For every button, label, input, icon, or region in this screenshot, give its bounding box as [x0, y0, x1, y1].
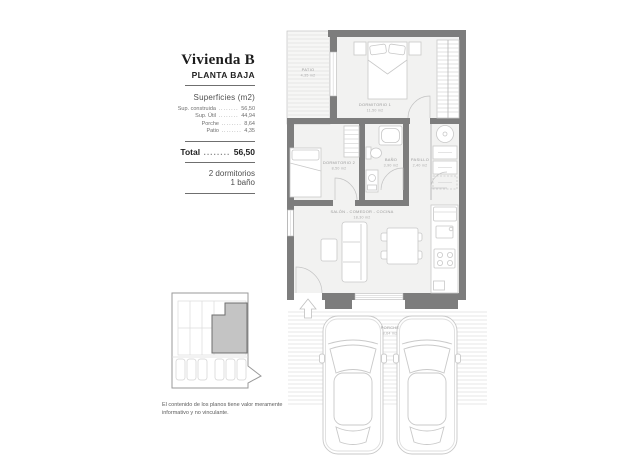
- floor-plan-svg: DORMITORIO 1 11,50 m2 DORMITORIO 2 8,50 …: [0, 0, 631, 464]
- bathroom-sink: [366, 170, 378, 192]
- single-bed: [290, 148, 321, 197]
- stairs: [344, 126, 359, 157]
- dining-table: [387, 228, 418, 264]
- svg-text:11,50 m2: 11,50 m2: [367, 109, 384, 113]
- boiler: [437, 126, 454, 143]
- car-left: [320, 316, 387, 454]
- svg-text:18,30 m2: 18,30 m2: [354, 216, 371, 220]
- room-label-salon: SALÓN - COMEDOR - COCINA: [330, 209, 393, 214]
- toilet: [366, 147, 382, 159]
- nightstand-right: [409, 42, 421, 55]
- svg-text:8,50 m2: 8,50 m2: [332, 167, 347, 171]
- key-plan: [172, 293, 261, 388]
- room-label-bano: BAÑO: [385, 157, 397, 162]
- svg-text:8,64 m2: 8,64 m2: [383, 332, 398, 336]
- room-label-patio: PATIO: [302, 67, 315, 72]
- living-room-side-window: [288, 210, 294, 236]
- entrance-arrow: [300, 299, 316, 318]
- bedroom2-furniture: [290, 148, 321, 197]
- coffee-table: [321, 239, 337, 261]
- svg-text:2,40 m2: 2,40 m2: [413, 164, 428, 168]
- bathtub: [379, 126, 402, 145]
- patio-window: [330, 52, 337, 96]
- double-bed: [368, 42, 407, 99]
- nightstand-left: [354, 42, 366, 55]
- kitchen: [431, 205, 458, 293]
- sofa: [342, 222, 367, 282]
- svg-text:3,90 m2: 3,90 m2: [384, 164, 399, 168]
- wardrobe: [437, 40, 459, 118]
- room-label-porche: PORCHE: [381, 325, 400, 330]
- car-right: [394, 316, 461, 454]
- room-label-dormitorio2: DORMITORIO 2: [323, 160, 356, 165]
- floor-plan-page: Vivienda B PLANTA BAJA Superficies (m2) …: [0, 0, 631, 464]
- living-room-front-window: [355, 294, 403, 300]
- svg-text:4,35 m2: 4,35 m2: [301, 74, 316, 78]
- room-label-dormitorio1: DORMITORIO 1: [359, 102, 392, 107]
- parking-cars: [320, 316, 461, 454]
- dining-set: [381, 228, 422, 264]
- room-label-pasillo: PASILLO: [411, 157, 429, 162]
